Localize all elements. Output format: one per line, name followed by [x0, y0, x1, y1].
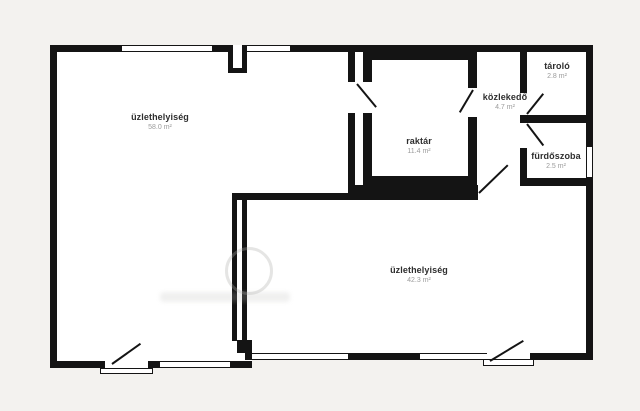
niche-opening [233, 45, 242, 52]
room-label-shop-left: üzlethelyiség 58.0 m² [131, 112, 189, 132]
storage-wall-bottom-merge [348, 185, 478, 193]
room-label-storage: raktár 11.4 m² [406, 136, 432, 156]
storage-wall-right-upper [468, 51, 477, 88]
room-area: 4.7 m² [483, 103, 527, 112]
middle-wall-foot [237, 340, 252, 353]
floor-plan: üzlethelyiség 58.0 m² raktár 11.4 m² köz… [0, 0, 640, 411]
room-label-bathroom: fürdőszoba 2.5 m² [531, 151, 581, 171]
room-name: raktár [406, 136, 432, 147]
room-label-hallway: közlekedő 4.7 m² [483, 92, 527, 112]
hallway-divider-upper [520, 49, 527, 93]
window-right-bathroom [587, 147, 592, 177]
niche-wall-bottom [228, 68, 247, 73]
window-top-2 [247, 46, 290, 51]
bottom-shop-top-wall [232, 193, 478, 200]
room-label-store-room: tároló 2.8 m² [544, 61, 570, 81]
exterior-wall-right [586, 45, 593, 360]
storage-outer-wall-upper [348, 45, 355, 82]
exterior-wall-left [50, 45, 57, 368]
window-bottom-right-1 [252, 354, 348, 359]
window-top-1 [122, 46, 212, 51]
storage-outer-wall-lower [348, 113, 355, 193]
room-name: üzlethelyiség [131, 112, 189, 123]
bathroom-wall-bottom [520, 178, 586, 186]
storage-wall-top [363, 51, 477, 60]
watermark-ring [225, 247, 273, 295]
store-room-wall-bottom [520, 115, 586, 123]
room-area: 58.0 m² [131, 123, 189, 132]
room-area: 42.3 m² [390, 276, 448, 285]
room-name: fürdőszoba [531, 151, 581, 162]
storage-wall-bottom [363, 176, 477, 185]
floor-area-right [245, 45, 593, 360]
window-bottom-right-2 [420, 354, 487, 359]
storage-wall-left-lower [363, 113, 372, 185]
room-area: 2.8 m² [544, 72, 570, 81]
room-area: 11.4 m² [406, 147, 432, 156]
window-bottom-left [160, 362, 230, 367]
room-area: 2.5 m² [531, 162, 581, 171]
entrance-sill-left [100, 368, 153, 374]
room-label-shop-bottom: üzlethelyiség 42.3 m² [390, 265, 448, 285]
room-name: közlekedő [483, 92, 527, 103]
room-name: tároló [544, 61, 570, 72]
watermark-text-smudge [160, 292, 290, 302]
floor-area-left [50, 45, 252, 368]
room-name: üzlethelyiség [390, 265, 448, 276]
